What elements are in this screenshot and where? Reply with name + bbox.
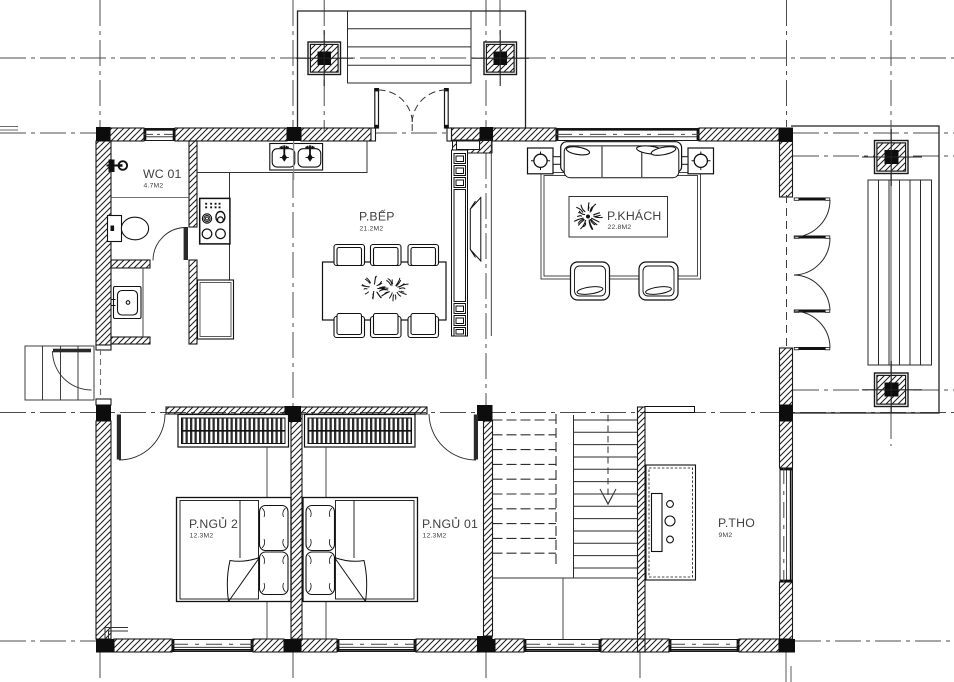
svg-text:P.NGỦ 01: P.NGỦ 01	[422, 516, 478, 531]
svg-text:P.NGỦ 2: P.NGỦ 2	[189, 516, 238, 531]
svg-text:12.3M2: 12.3M2	[190, 533, 214, 540]
svg-text:9M2: 9M2	[719, 532, 733, 539]
svg-text:4.7M2: 4.7M2	[144, 183, 164, 190]
svg-text:22.8M2: 22.8M2	[608, 224, 632, 231]
svg-text:12.3M2: 12.3M2	[423, 533, 447, 540]
svg-text:WC 01: WC 01	[143, 167, 182, 181]
svg-text:P.THO: P.THO	[718, 516, 755, 530]
svg-text:21.2M2: 21.2M2	[360, 226, 384, 233]
svg-text:P.BẾP: P.BẾP	[359, 209, 395, 224]
svg-text:P.KHÁCH: P.KHÁCH	[607, 208, 661, 223]
